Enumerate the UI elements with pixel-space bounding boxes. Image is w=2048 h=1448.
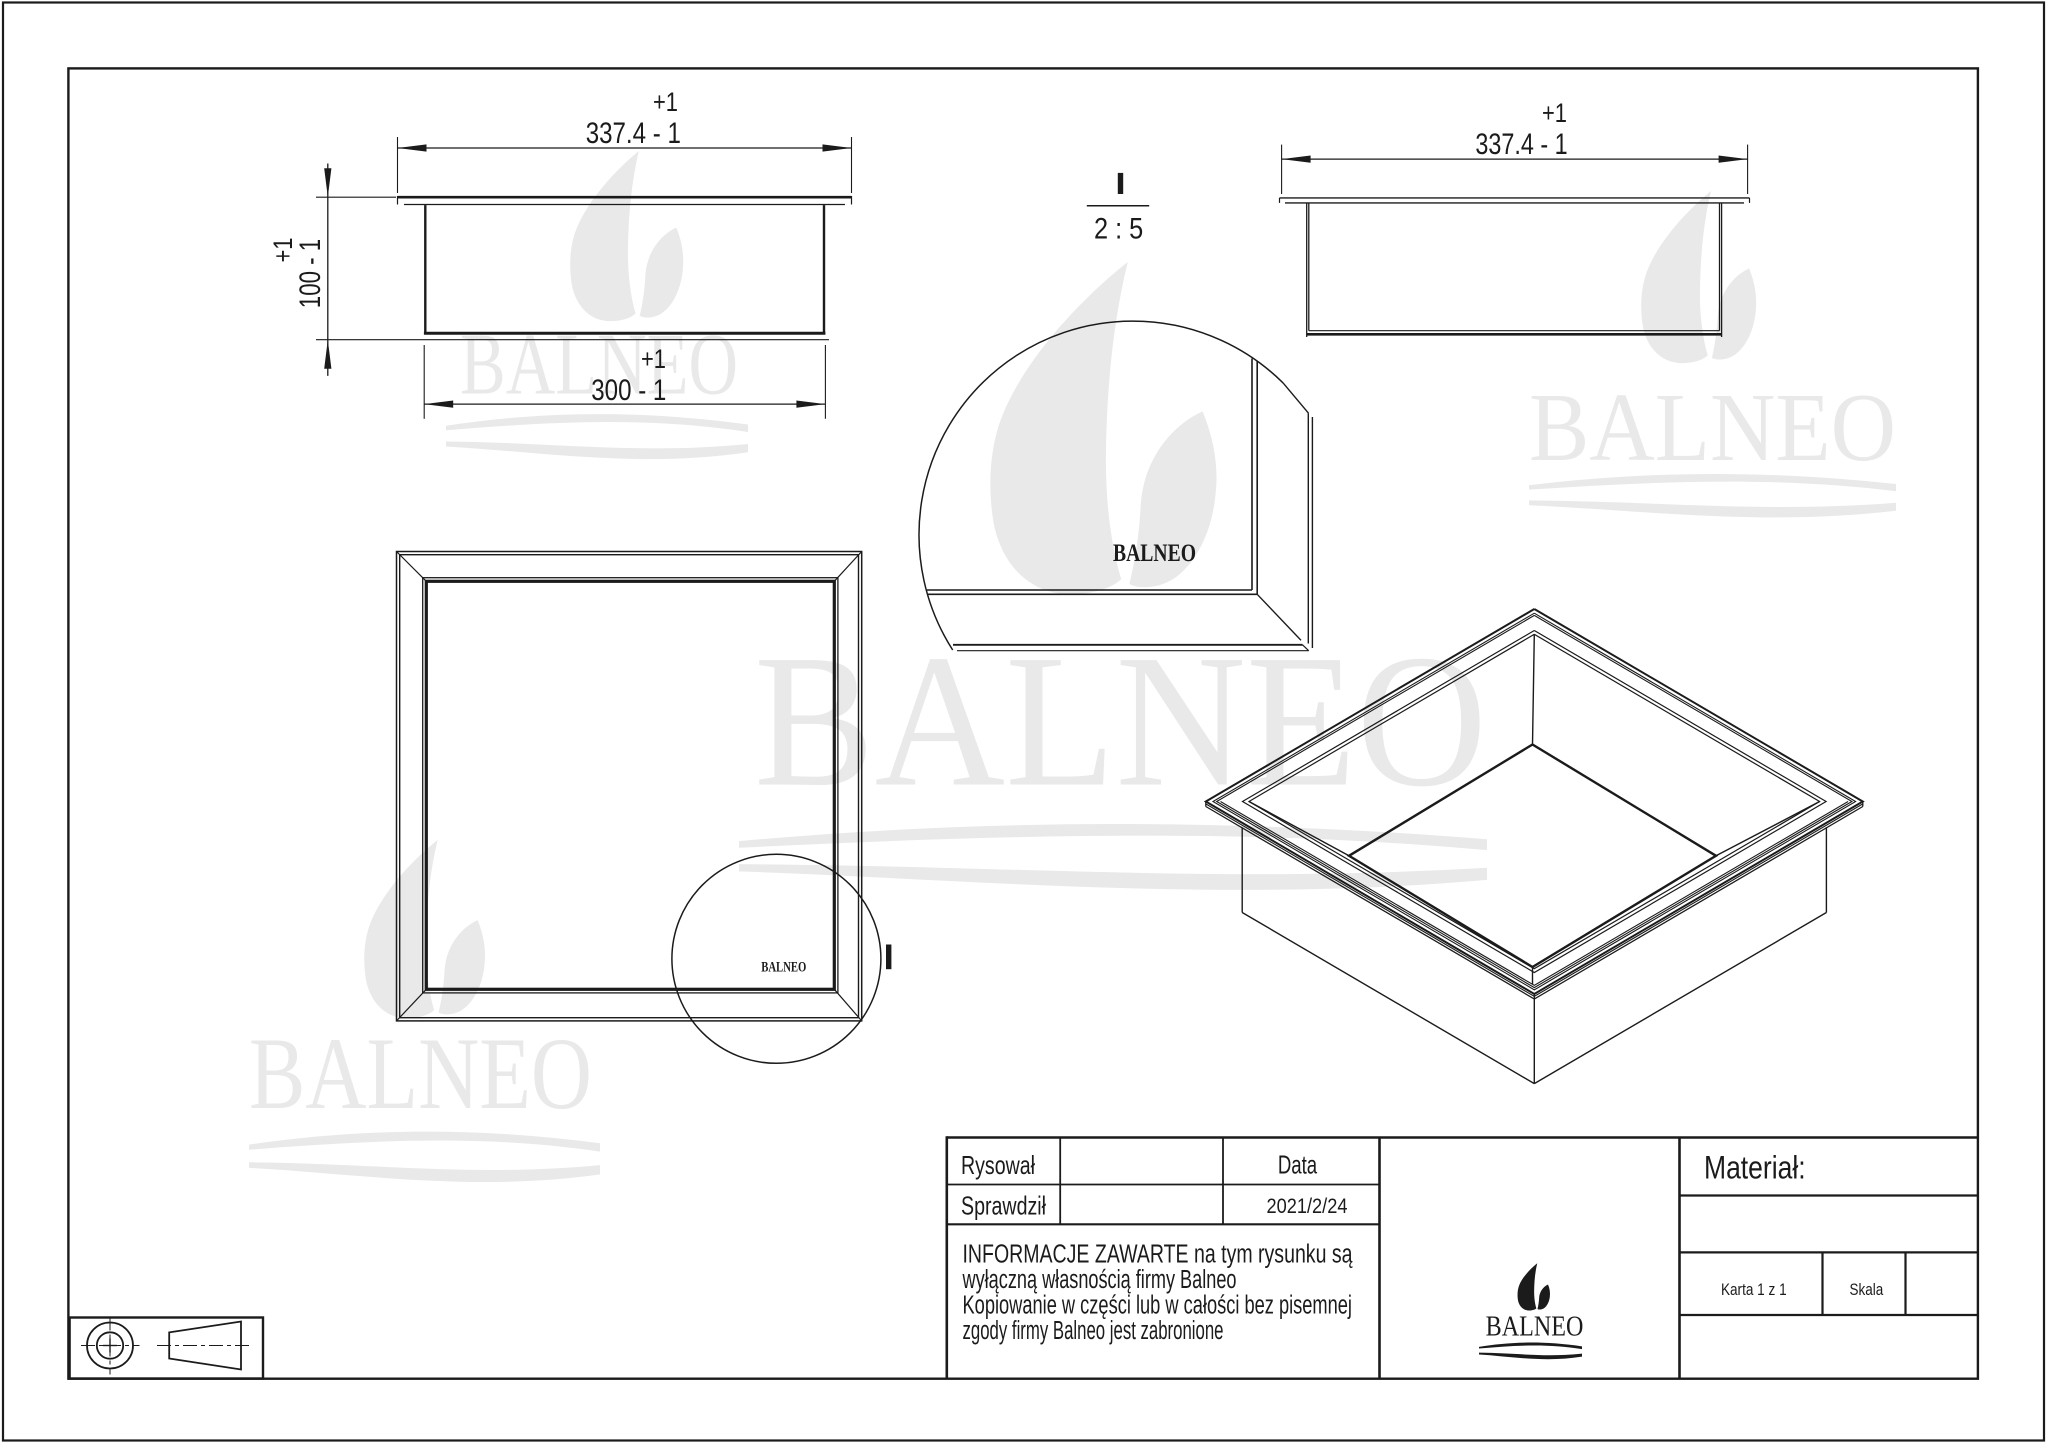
svg-text:zgody firmy Balneo jest zabron: zgody firmy Balneo jest zabronione: [963, 1317, 1224, 1345]
svg-text:+1: +1: [653, 87, 678, 117]
svg-text:Rysował: Rysował: [961, 1150, 1035, 1180]
svg-text:Kopiowanie w części lub w cało: Kopiowanie w części lub w całości bez pi…: [963, 1292, 1353, 1320]
svg-text:337.4 - 1: 337.4 - 1: [586, 117, 681, 150]
svg-text:2021/2/24: 2021/2/24: [1267, 1194, 1348, 1218]
svg-text:Materiał:: Materiał:: [1704, 1150, 1806, 1186]
svg-text:+1: +1: [1542, 98, 1567, 128]
svg-text:Data: Data: [1278, 1150, 1318, 1180]
svg-text:INFORMACJE ZAWARTE na tym rysu: INFORMACJE ZAWARTE na tym rysunku są: [963, 1241, 1354, 1269]
svg-text:Skala: Skala: [1850, 1280, 1884, 1299]
svg-text:BALNEO: BALNEO: [1529, 374, 1896, 482]
svg-text:BALNEO: BALNEO: [1113, 540, 1196, 567]
svg-text:337.4 - 1: 337.4 - 1: [1475, 128, 1567, 161]
svg-text:300 - 1: 300 - 1: [591, 374, 666, 407]
svg-text:BALNEO: BALNEO: [1486, 1311, 1584, 1342]
svg-text:2 : 5: 2 : 5: [1094, 212, 1143, 245]
svg-text:100 - 1: 100 - 1: [294, 239, 327, 308]
svg-text:Karta 1 z 1: Karta 1 z 1: [1721, 1280, 1787, 1299]
svg-text:BALNEO: BALNEO: [249, 1017, 592, 1131]
svg-text:BALNEO: BALNEO: [754, 617, 1487, 827]
svg-text:Sprawdził: Sprawdził: [961, 1191, 1046, 1221]
svg-text:wyłączną własnością firmy Baln: wyłączną własnością firmy Balneo: [962, 1266, 1237, 1294]
svg-text:BALNEO: BALNEO: [761, 959, 806, 975]
svg-text:+1: +1: [641, 344, 666, 374]
